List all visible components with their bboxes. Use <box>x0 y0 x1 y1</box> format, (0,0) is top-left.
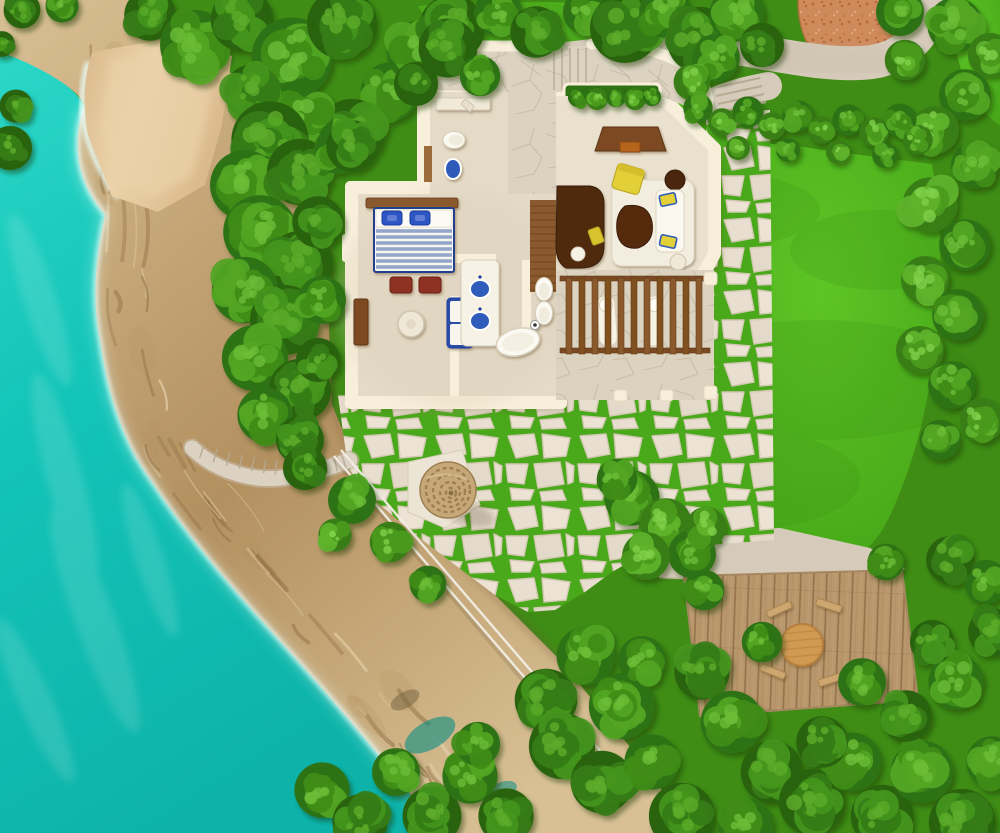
headboard <box>366 198 458 208</box>
bush <box>606 87 626 107</box>
stool <box>670 254 686 270</box>
tree-canopy <box>326 118 378 172</box>
tree-canopy <box>394 62 438 106</box>
bush <box>586 88 608 110</box>
tree-canopy <box>372 748 420 796</box>
tree-canopy <box>903 125 932 154</box>
tree-canopy <box>796 716 848 768</box>
tree-canopy <box>742 622 782 662</box>
tree-canopy <box>932 289 984 341</box>
bush <box>826 140 850 164</box>
tree-canopy <box>928 361 976 409</box>
bush <box>758 112 786 140</box>
ottoman <box>390 277 412 293</box>
sink <box>470 280 490 298</box>
tree-canopy <box>885 40 925 80</box>
desk-chair <box>571 247 585 261</box>
tree-canopy <box>296 338 340 382</box>
pergola-beams <box>560 276 710 354</box>
bush <box>726 136 750 160</box>
tree-canopy <box>838 658 886 706</box>
sink <box>445 159 461 179</box>
bed <box>374 208 454 272</box>
daybed <box>656 190 684 252</box>
bush <box>808 116 836 144</box>
pergola-deck <box>556 270 717 401</box>
tree-canopy <box>674 641 732 699</box>
coffee-table <box>617 205 653 248</box>
vanity-counter <box>461 260 499 346</box>
bench <box>354 299 368 345</box>
bush <box>872 142 898 168</box>
tree-canopy <box>740 23 784 67</box>
site-plan-illustration <box>0 0 1000 833</box>
tree-canopy <box>510 6 565 58</box>
tree-canopy <box>939 219 991 271</box>
bush <box>643 88 661 106</box>
sink <box>470 312 490 330</box>
site-plan-canvas <box>0 0 1000 833</box>
tree-canopy <box>920 420 960 460</box>
side-table <box>665 170 685 190</box>
bush <box>624 88 646 110</box>
ottoman <box>419 277 441 293</box>
door-threshold <box>424 146 432 182</box>
